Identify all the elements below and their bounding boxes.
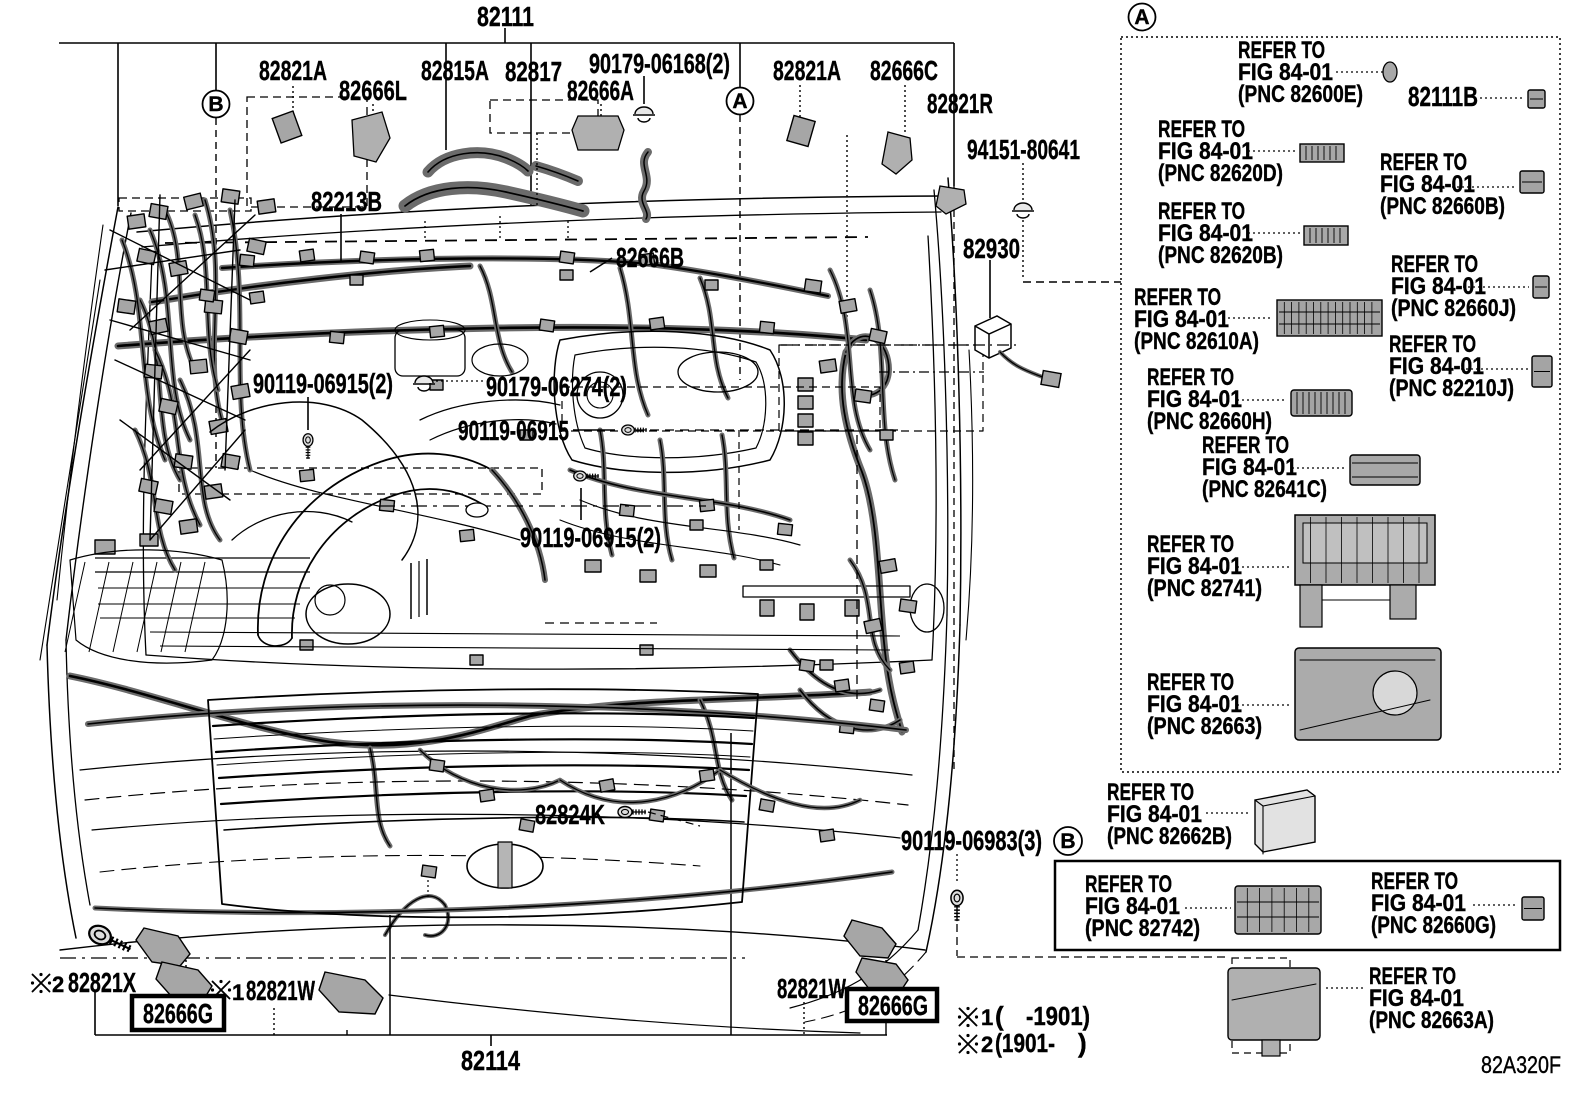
svg-text:2: 2 (981, 1032, 993, 1057)
svg-text:82930: 82930 (963, 233, 1020, 264)
svg-text:82817: 82817 (505, 56, 562, 87)
svg-text:82821R: 82821R (927, 88, 993, 119)
svg-text:94151-80641: 94151-80641 (967, 134, 1080, 165)
svg-text:90119-06983(3): 90119-06983(3) (901, 825, 1042, 856)
svg-text:90119-06915(2): 90119-06915(2) (520, 522, 661, 553)
svg-text:82111: 82111 (477, 1, 534, 32)
svg-text:A: A (732, 90, 747, 113)
svg-text:(PNC 82620D): (PNC 82620D) (1158, 160, 1283, 187)
svg-text:82114: 82114 (461, 1045, 520, 1076)
svg-text:(PNC 82742): (PNC 82742) (1085, 915, 1200, 942)
svg-text:82824K: 82824K (535, 799, 605, 830)
svg-text:(PNC 82660H): (PNC 82660H) (1147, 408, 1272, 435)
svg-text:82815A: 82815A (421, 55, 489, 86)
svg-text:82821W: 82821W (246, 975, 315, 1006)
svg-text:(PNC 82663): (PNC 82663) (1147, 713, 1262, 740)
svg-text:82213B: 82213B (311, 186, 382, 217)
svg-text:(PNC 82620B): (PNC 82620B) (1158, 242, 1283, 269)
svg-text:82821A: 82821A (259, 55, 327, 86)
svg-text:(PNC 82641C): (PNC 82641C) (1202, 476, 1327, 503)
svg-text:82821A: 82821A (773, 55, 841, 86)
svg-text:82111B: 82111B (1408, 81, 1478, 112)
svg-text:(PNC 82210J): (PNC 82210J) (1389, 375, 1514, 402)
svg-text:-1901): -1901) (1026, 1001, 1090, 1031)
svg-text:(PNC 82610A): (PNC 82610A) (1134, 328, 1259, 355)
svg-text:(PNC 82662B): (PNC 82662B) (1107, 823, 1232, 850)
svg-text:82666L: 82666L (339, 75, 407, 106)
svg-text:(1901-: (1901- (995, 1028, 1055, 1058)
svg-text:(: ( (995, 1001, 1004, 1031)
svg-text:82821W: 82821W (777, 973, 846, 1004)
svg-text:82666G: 82666G (858, 990, 928, 1021)
svg-text:(PNC 82663A): (PNC 82663A) (1369, 1007, 1494, 1034)
svg-text:(PNC 82741): (PNC 82741) (1147, 575, 1262, 602)
svg-text:90179-06274(2): 90179-06274(2) (486, 371, 627, 402)
svg-text:2: 2 (52, 972, 64, 997)
svg-text:A: A (1134, 6, 1149, 29)
svg-text:90119-06915(2): 90119-06915(2) (253, 368, 393, 399)
svg-text:B: B (1060, 830, 1075, 853)
svg-text:1: 1 (232, 980, 244, 1005)
svg-text:82821X: 82821X (68, 967, 136, 998)
svg-text:B: B (208, 93, 223, 116)
svg-text:82666C: 82666C (870, 55, 938, 86)
svg-text:90119-06915: 90119-06915 (458, 415, 569, 446)
svg-text:82666G: 82666G (143, 998, 213, 1029)
svg-text:82666B: 82666B (616, 242, 684, 273)
svg-text:1: 1 (981, 1005, 993, 1030)
svg-text:(PNC 82600E): (PNC 82600E) (1238, 81, 1363, 108)
svg-text:(PNC 82660G): (PNC 82660G) (1371, 912, 1496, 939)
svg-text:): ) (1078, 1028, 1087, 1058)
svg-text:82A320F: 82A320F (1481, 1052, 1561, 1079)
svg-text:82666A: 82666A (567, 75, 634, 106)
svg-text:(PNC 82660B): (PNC 82660B) (1380, 193, 1505, 220)
svg-text:(PNC 82660J): (PNC 82660J) (1391, 295, 1516, 322)
